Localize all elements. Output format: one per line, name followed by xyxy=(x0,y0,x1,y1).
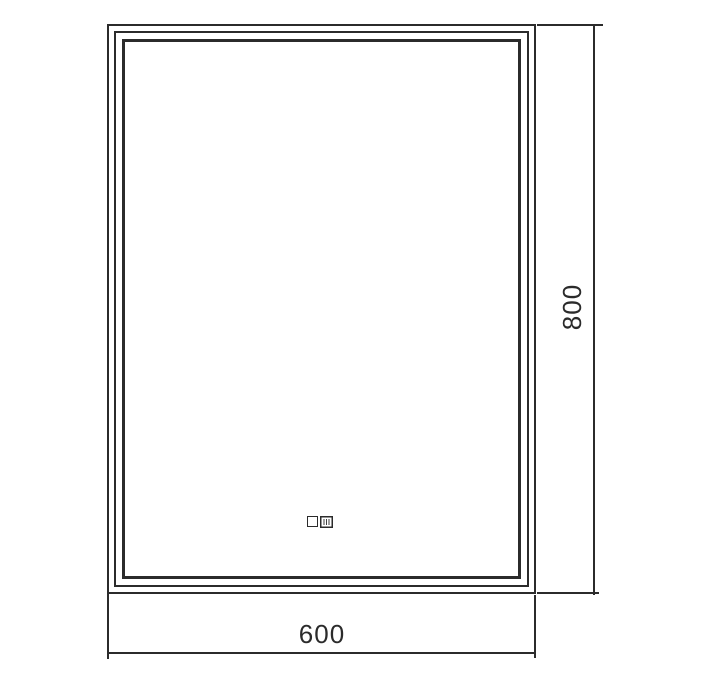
width-extension-line-left xyxy=(107,594,109,659)
drawing-canvas: 800 600 xyxy=(0,0,709,686)
clock-display-glyph xyxy=(320,516,333,528)
touch-sensor-icon xyxy=(307,516,318,527)
height-dimension-line xyxy=(593,25,595,595)
height-dimension-label: 800 xyxy=(559,277,585,337)
clock-display-icon xyxy=(320,515,333,527)
height-extension-line-bottom xyxy=(537,592,599,594)
width-extension-line-right xyxy=(534,595,536,658)
mirror-inner-frame xyxy=(122,39,521,579)
width-dimension-line xyxy=(107,652,536,654)
width-dimension-label: 600 xyxy=(292,621,352,647)
